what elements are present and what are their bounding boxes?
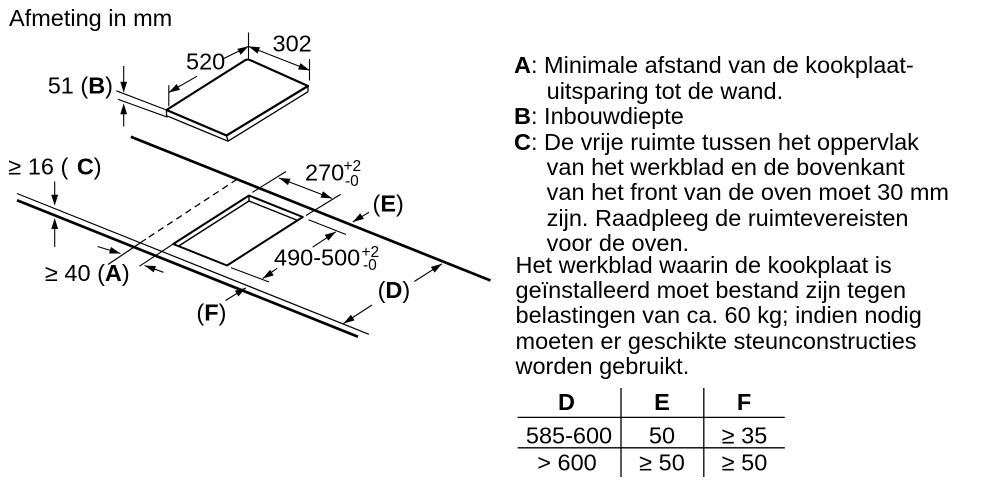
svg-text:-0: -0: [345, 173, 359, 190]
svg-text:520: 520: [186, 49, 225, 75]
svg-text:-0: -0: [363, 257, 377, 274]
svg-text:≥ 16 ( C): ≥ 16 ( C): [8, 154, 101, 180]
svg-text:Afmeting in mm: Afmeting in mm: [9, 5, 172, 31]
svg-text:> 600: > 600: [537, 450, 596, 476]
svg-text:≥ 40 (A): ≥ 40 (A): [45, 260, 130, 286]
svg-text:F: F: [737, 389, 751, 415]
svg-text:(F): (F): [196, 300, 226, 326]
svg-text:51 (B): 51 (B): [48, 73, 113, 99]
svg-text:D: D: [558, 389, 575, 415]
svg-text:490-500: 490-500: [274, 244, 360, 270]
svg-text:≥ 35: ≥ 35: [722, 422, 768, 448]
svg-text:50: 50: [649, 422, 675, 448]
svg-text:(D): (D): [378, 277, 411, 303]
svg-text:E: E: [654, 389, 670, 415]
svg-text:270: 270: [305, 160, 344, 186]
svg-text:585-600: 585-600: [526, 422, 612, 448]
svg-text:≥ 50: ≥ 50: [639, 450, 685, 476]
svg-text:302: 302: [273, 31, 312, 57]
svg-text:(E): (E): [373, 191, 404, 217]
svg-text:≥ 50: ≥ 50: [722, 450, 768, 476]
